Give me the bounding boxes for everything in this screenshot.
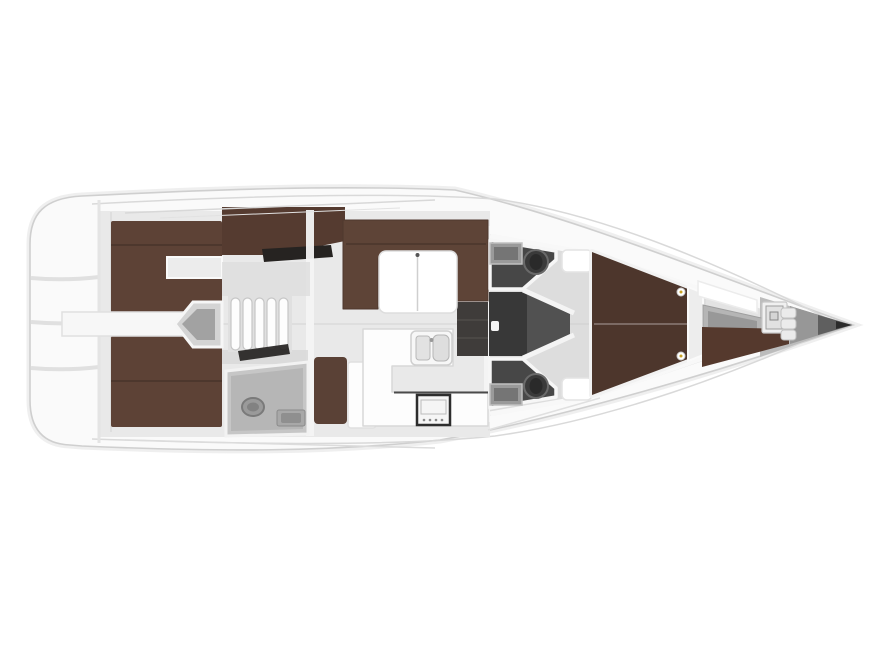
nav-seat bbox=[314, 357, 347, 424]
deck-plan-canvas bbox=[0, 0, 871, 653]
stove-knob-2 bbox=[429, 419, 432, 422]
head-starboard-toilet-lid bbox=[530, 378, 543, 394]
aft-berth-port-shelf bbox=[167, 257, 222, 278]
entry-locker-port bbox=[562, 250, 592, 272]
step-3 bbox=[255, 298, 264, 350]
step-4 bbox=[267, 298, 276, 350]
step-1 bbox=[231, 298, 240, 350]
forepeak-cabinet-knob bbox=[770, 312, 778, 320]
reading-lamp-port-bulb bbox=[680, 291, 683, 294]
companionway-steps bbox=[231, 298, 288, 350]
berth-foot-board bbox=[688, 287, 703, 361]
galley-faucet bbox=[430, 338, 434, 342]
bow-locker-2 bbox=[781, 319, 796, 329]
salon-locker-dark bbox=[457, 302, 488, 356]
aft-head-toilet-lid bbox=[247, 403, 259, 412]
bow-locker-segments bbox=[781, 308, 796, 340]
head-port-toilet-lid bbox=[530, 254, 543, 270]
bow-locker-3 bbox=[781, 330, 796, 340]
aft-walkway bbox=[62, 312, 190, 336]
entry-locker-starboard bbox=[562, 378, 592, 400]
step-2 bbox=[243, 298, 252, 350]
salon-table-hinge bbox=[416, 253, 420, 257]
door-handle bbox=[491, 321, 499, 331]
aft-head-sink-basin bbox=[281, 413, 301, 423]
galley-sink-basin-right bbox=[433, 335, 449, 361]
companionway-landing-upper bbox=[222, 262, 310, 296]
stove-knob-3 bbox=[435, 419, 438, 422]
yacht-deck-plan bbox=[0, 0, 871, 653]
transom-divider-3 bbox=[31, 367, 99, 369]
stove-knob-4 bbox=[441, 419, 444, 422]
head-port-sink-basin bbox=[494, 247, 518, 260]
step-5 bbox=[279, 298, 288, 350]
aft-cabin-starboard bbox=[111, 336, 222, 427]
head-starboard-sink-basin bbox=[494, 388, 518, 401]
reading-lamp-starboard-bulb bbox=[680, 355, 683, 358]
galley-sink-basin-left bbox=[416, 336, 430, 360]
aft-head bbox=[226, 362, 308, 436]
bow-locker-1 bbox=[781, 308, 796, 318]
stove-knob-1 bbox=[423, 419, 426, 422]
transom-divider-1 bbox=[31, 277, 99, 279]
